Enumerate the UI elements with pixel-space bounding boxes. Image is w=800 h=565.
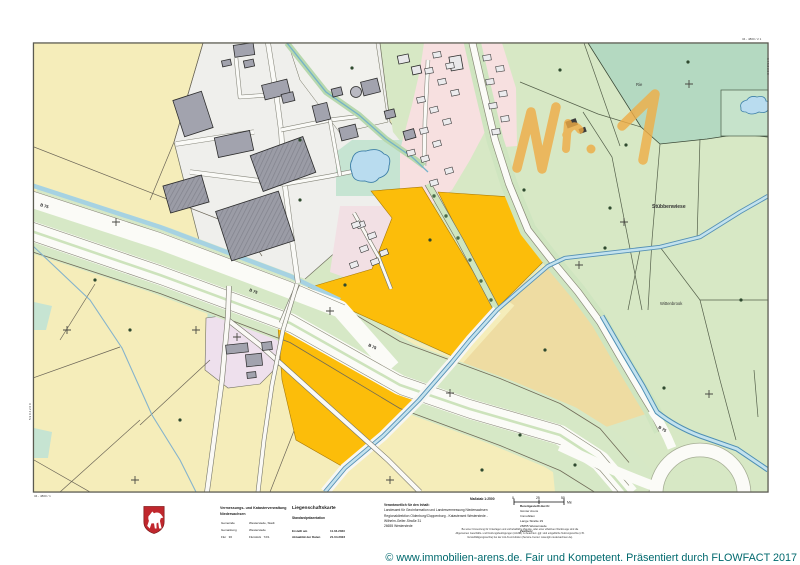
svg-text:Wittenbrook: Wittenbrook [660,301,683,306]
svg-text:Stübbenwiese: Stübbenwiese [652,204,686,210]
svg-text:50: 50 [561,496,565,500]
svg-text:25: 25 [536,496,540,500]
svg-text:Rie: Rie [636,82,643,87]
svg-text:0: 0 [512,496,514,500]
svg-text:Meter: Meter [567,501,572,505]
